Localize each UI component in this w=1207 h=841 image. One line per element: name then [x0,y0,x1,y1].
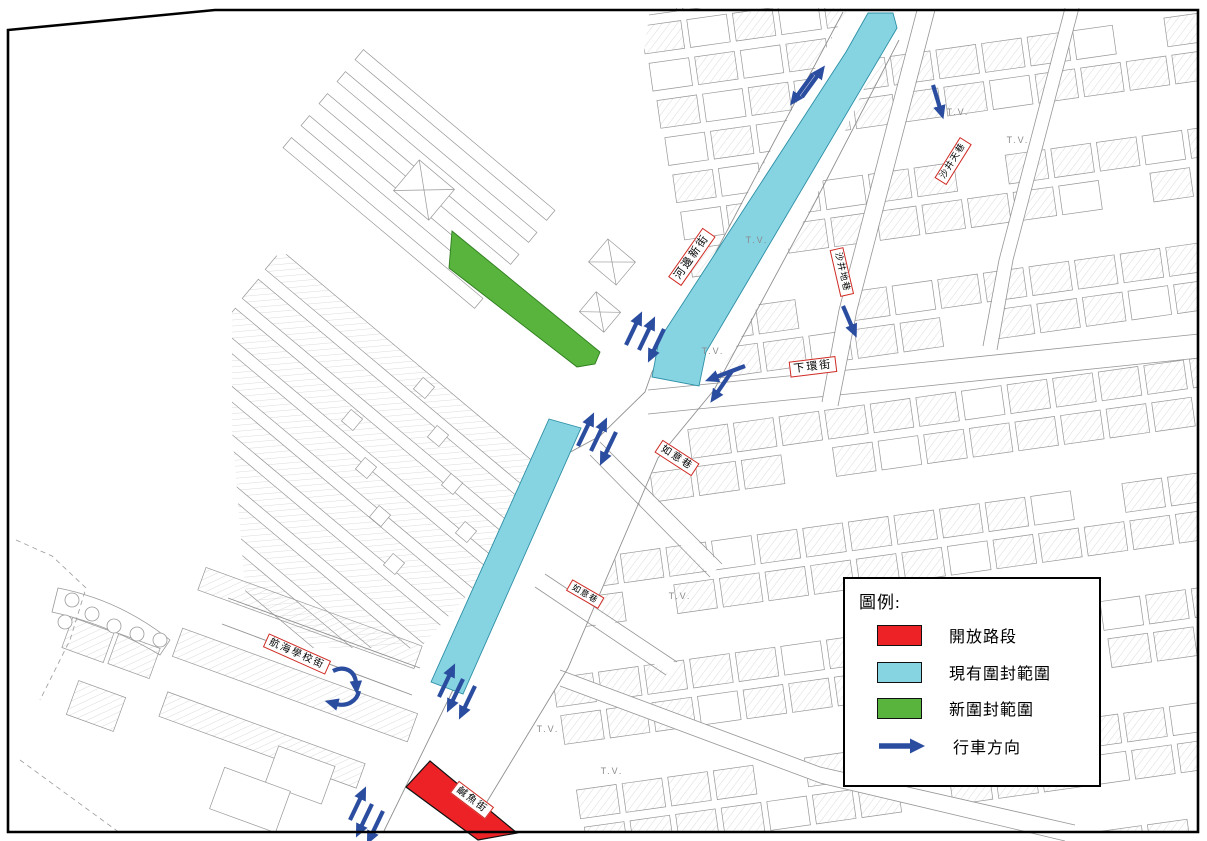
legend-item-label: 開放路段 [949,623,1017,647]
traffic-direction-arrow [361,804,372,827]
legend-item-open-road: 開放路段 [877,623,1017,647]
legend-item-label: 行車方向 [953,734,1021,758]
legend-item-label: 現有圍封範圍 [949,660,1051,684]
vacant-lot-label: T.V. [947,107,970,117]
traffic-direction-arrow [333,669,356,683]
existing-closure-swatch [877,662,922,683]
vacant-lot-label: T.V. [537,724,560,734]
vacant-lot-label: T.V. [669,591,692,601]
traffic-direction-arrow [605,432,616,455]
traffic-direction-arrow [464,686,475,709]
legend-item-label: 新圍封範圍 [949,696,1034,720]
legend-arrow-icon [877,737,926,755]
open-road-swatch [877,625,922,646]
vacant-lot-label: T.V. [1007,135,1030,145]
traffic-direction-arrow [626,322,637,345]
road-closure-map-page: 河邊新街 沙井天巷 沙井地巷 下環街 如意巷 如意巷 航海學校街 鹹魚街 T.V… [0,0,1207,841]
traffic-direction-arrow [372,811,383,834]
traffic-direction-arrow [639,327,650,350]
legend-item-traffic-direction: 行車方向 [877,734,1021,758]
legend-item-existing-closure: 現有圍封範圍 [877,660,1051,684]
new-closure-swatch [877,698,922,719]
traffic-direction-arrow [350,797,361,820]
vacant-lot-label: T.V. [702,346,725,356]
legend-box: 圖例: 開放路段 現有圍封範圍 新圍封範圍 行車方向 [843,577,1101,787]
legend-item-new-closure: 新圍封範圍 [877,696,1034,720]
vacant-lot-label: T.V. [601,766,624,776]
legend-title: 圖例: [859,588,901,613]
vacant-lot-label: T.V. [746,235,769,245]
